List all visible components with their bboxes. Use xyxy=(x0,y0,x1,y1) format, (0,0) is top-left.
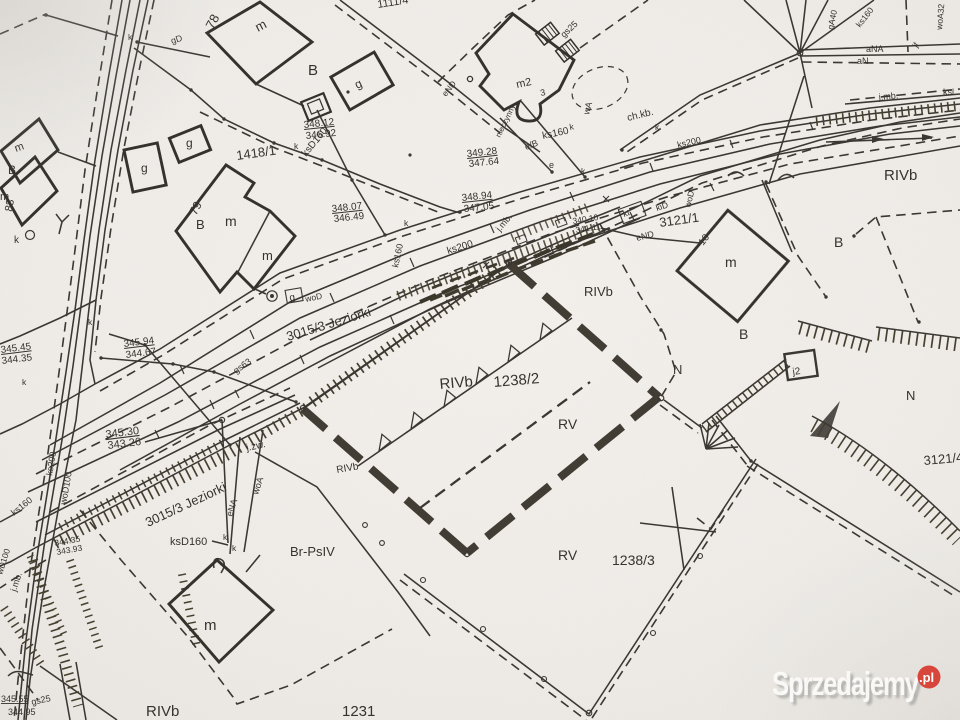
svg-text:Sprzedajemy: Sprzedajemy xyxy=(772,666,919,703)
svg-text:.pl: .pl xyxy=(919,670,934,685)
